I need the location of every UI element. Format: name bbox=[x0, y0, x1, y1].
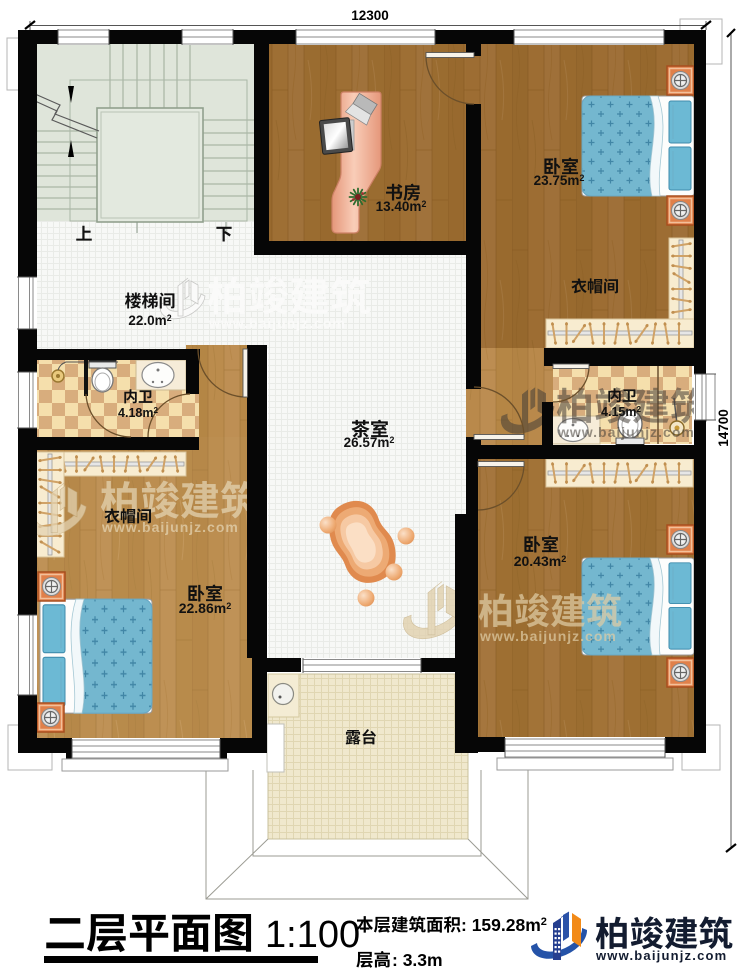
svg-text:12300: 12300 bbox=[351, 8, 389, 23]
svg-text:www.baijunjz.com: www.baijunjz.com bbox=[101, 519, 239, 535]
svg-text:www.baijunjz.com: www.baijunjz.com bbox=[208, 315, 346, 331]
svg-text:www.baijunjz.com: www.baijunjz.com bbox=[595, 948, 727, 963]
svg-text:22.86m2: 22.86m2 bbox=[179, 600, 232, 616]
svg-text:13.40m2: 13.40m2 bbox=[376, 199, 427, 214]
svg-text:1:100: 1:100 bbox=[265, 914, 360, 956]
svg-text:26.57m2: 26.57m2 bbox=[344, 435, 395, 450]
svg-text:23.75m2: 23.75m2 bbox=[534, 173, 585, 188]
svg-text:20.43m2: 20.43m2 bbox=[514, 553, 567, 569]
svg-text:14700: 14700 bbox=[716, 409, 731, 447]
svg-text:4.15m2: 4.15m2 bbox=[601, 405, 641, 419]
svg-text:: 3.3m: : 3.3m bbox=[392, 950, 443, 970]
svg-text:www.baijunjz.com: www.baijunjz.com bbox=[479, 628, 617, 644]
svg-text:www.baijunjz.com: www.baijunjz.com bbox=[557, 424, 695, 440]
svg-text:22.0m2: 22.0m2 bbox=[128, 313, 171, 328]
svg-text:: 159.28m2: : 159.28m2 bbox=[461, 915, 547, 935]
svg-text:4.18m2: 4.18m2 bbox=[118, 406, 158, 420]
